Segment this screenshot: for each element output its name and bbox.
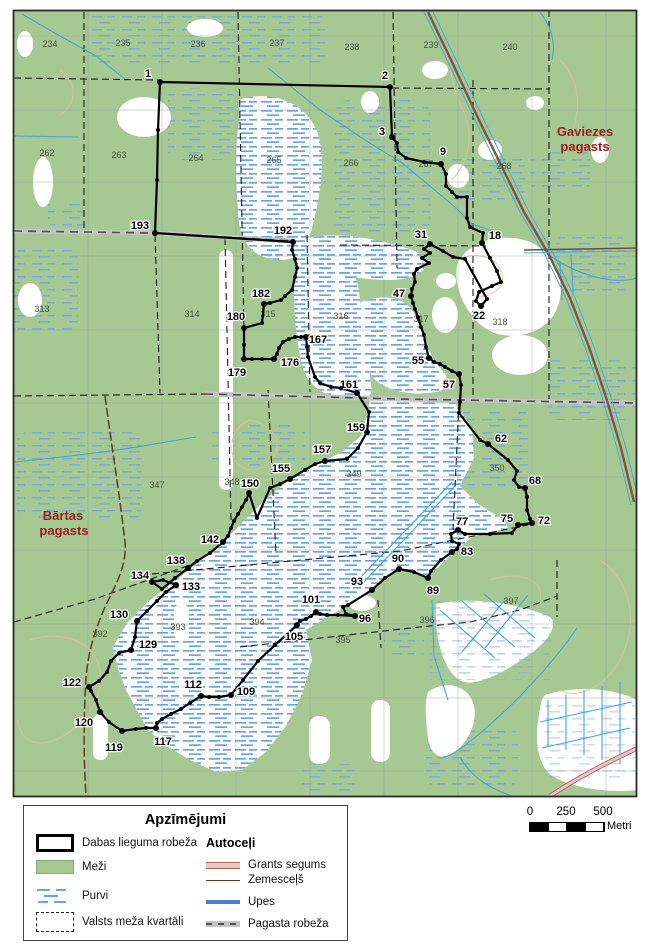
boundary-point: [281, 340, 285, 344]
boundary-point: [356, 446, 360, 450]
boundary-point-label: 167: [309, 334, 327, 346]
boundary-point: [287, 476, 293, 482]
boundary-point: [220, 539, 226, 545]
boundary-point: [94, 698, 98, 702]
reserve-boundary-label: Dabas lieguma robeža: [82, 837, 197, 849]
grid-quarter-number: 235: [115, 38, 130, 48]
grid-quarter-number: 347: [149, 480, 164, 490]
dirt-road-swatch: [206, 880, 240, 881]
boundary-point: [226, 534, 230, 538]
boundary-point: [128, 647, 134, 653]
boundary-point: [164, 590, 168, 594]
boundary-point: [525, 495, 529, 499]
boundary-point: [463, 532, 467, 536]
boundary-point: [344, 612, 348, 616]
boundary-point: [149, 579, 155, 585]
boundary-point: [161, 578, 165, 582]
boundary-point-label: 101: [302, 594, 320, 606]
boundary-point: [244, 498, 248, 502]
boundary-point: [268, 486, 272, 490]
boundary-point: [419, 325, 423, 329]
grid-quarter-number: 313: [34, 304, 49, 314]
boundary-point: [97, 709, 103, 715]
boundary-point: [298, 619, 302, 623]
boundary-point-label: 142: [201, 534, 219, 546]
boundary-point: [450, 369, 454, 373]
boundary-point: [529, 520, 535, 526]
boundary-point: [438, 362, 442, 366]
boundary-point: [465, 216, 469, 220]
legend-item-gravel-road: Grants segums: [206, 859, 326, 871]
boundary-point: [422, 247, 426, 251]
scale-tick-500: 500: [593, 806, 612, 818]
boundary-point: [451, 255, 455, 259]
boundary-point: [86, 684, 92, 690]
boundary-point: [389, 134, 395, 140]
boundary-point: [444, 184, 448, 188]
boundary-point: [303, 468, 307, 472]
grid-quarter-number: 266: [343, 158, 358, 168]
boundary-point: [449, 532, 453, 536]
boundary-point-label: 93: [351, 576, 363, 588]
boundary-point: [293, 257, 297, 261]
boundary-point: [329, 385, 333, 389]
boundary-point: [157, 79, 163, 85]
boundary-point-label: 192: [274, 225, 292, 237]
boundary-point-label: 68: [529, 475, 541, 487]
boundary-point: [468, 225, 472, 229]
boundary-point: [290, 248, 294, 252]
boundary-point: [396, 566, 402, 572]
boundary-point: [341, 605, 345, 609]
boundary-point: [229, 526, 233, 530]
gaviezes-pagasts-label-line2: pagasts: [560, 139, 609, 154]
boundary-point-label: 1: [145, 68, 151, 80]
boundary-point: [133, 635, 137, 639]
boundary-point: [242, 343, 246, 347]
boundary-point: [422, 333, 426, 337]
boundary-point-label: 133: [182, 581, 200, 593]
boundary-point: [277, 346, 281, 350]
boundary-point: [427, 241, 433, 247]
boundary-point: [525, 508, 529, 512]
boundary-point: [444, 172, 448, 176]
boundary-point: [412, 272, 416, 276]
boundary-point-label: 47: [393, 288, 405, 300]
boundary-point: [485, 297, 489, 301]
boundary-point-label: 55: [412, 355, 424, 367]
grid-quarter-number: 350: [489, 463, 504, 473]
boundary-point: [395, 141, 399, 145]
boundary-point: [450, 539, 454, 543]
boundary-point: [455, 547, 459, 551]
boundary-point-label: 31: [415, 229, 427, 241]
grid-quarter-number: 397: [503, 596, 518, 606]
boundary-point: [169, 712, 173, 716]
boundary-point: [517, 485, 521, 489]
boundary-point-label: 83: [461, 546, 473, 558]
bartas-pagasts-label-line1: Bārtas: [43, 508, 83, 523]
boundary-point: [457, 411, 461, 415]
boundary-point: [278, 482, 282, 486]
boundary-point: [313, 609, 319, 615]
boundary-point: [396, 150, 400, 154]
boundary-point: [241, 325, 247, 331]
boundary-point: [455, 195, 459, 199]
forest-quarters-swatch: [36, 912, 74, 932]
boundary-point: [515, 469, 519, 473]
boundary-point: [506, 458, 510, 462]
boundary-point: [438, 161, 444, 167]
boundary-point: [109, 659, 113, 663]
boundary-point: [256, 659, 260, 663]
boundary-point: [481, 231, 485, 235]
boundary-point: [304, 617, 308, 621]
boundary-point: [105, 670, 109, 674]
forest-swatch: [36, 860, 74, 874]
boundary-point: [510, 531, 514, 535]
boundary-point: [336, 613, 340, 617]
dirt-road-label: Zemesceļš: [248, 874, 304, 886]
boundary-point-label: 2: [382, 70, 388, 82]
boundary-point: [488, 532, 492, 536]
boundary-point-label: 3: [379, 126, 385, 138]
boundary-point: [387, 84, 393, 90]
boundary-point: [408, 293, 414, 299]
boundary-point-label: 22: [473, 310, 485, 322]
boundary-point: [515, 522, 521, 528]
legend-item-forest-quarters: Valsts meža kvartāli: [36, 912, 183, 932]
grid-quarter-number: 394: [249, 617, 264, 627]
boundary-point: [383, 576, 387, 580]
legend-box: Apzīmējumi Dabas lieguma robeža Meži Pur…: [23, 805, 348, 941]
boundary-point-label: 193: [131, 220, 149, 232]
boundary-point: [499, 280, 503, 284]
boundary-point: [208, 551, 212, 555]
boundary-point: [426, 355, 432, 361]
grid-quarter-number: 316: [333, 311, 348, 321]
boundary-point: [478, 303, 484, 309]
boundary-point-label: 159: [347, 422, 365, 434]
boundary-point: [450, 190, 454, 194]
boundary-point: [458, 400, 462, 404]
boundary-point: [195, 559, 199, 563]
boundary-point: [160, 717, 164, 721]
gaviezes-pagasts-label-line1: Gaviezes: [557, 124, 613, 139]
grid-quarter-number: 264: [188, 153, 203, 163]
boundary-point: [463, 257, 467, 261]
boundary-point: [339, 386, 343, 390]
boundary-point: [495, 269, 499, 273]
boundary-point: [427, 261, 431, 265]
map-page: 2342352362372382392402622632642652662672…: [0, 0, 650, 952]
grid-quarter-number: 349: [346, 469, 361, 479]
boundary-point: [325, 613, 329, 617]
rivers-swatch: [206, 900, 240, 904]
boundary-point: [134, 618, 140, 624]
boundary-point: [179, 707, 183, 711]
boundary-point: [322, 458, 328, 464]
scale-bar-segments: [529, 822, 605, 832]
boundary-point: [474, 299, 478, 303]
scale-bar: 0 250 500 Metri: [516, 806, 648, 846]
boundary-point: [295, 266, 299, 270]
grid-quarter-number: 348: [224, 477, 239, 487]
boundary-point: [155, 721, 159, 725]
boundary-point: [155, 599, 159, 603]
forest-quarters-label: Valsts meža kvartāli: [82, 916, 183, 928]
boundary-point: [306, 355, 310, 359]
scale-tick-0: 0: [527, 806, 533, 818]
boundary-point: [318, 381, 322, 385]
boundary-point: [188, 701, 192, 705]
boundary-point: [294, 622, 300, 628]
boundary-point: [439, 558, 443, 562]
grid-quarter-number: 237: [269, 38, 284, 48]
boundary-point: [411, 301, 415, 305]
boundary-point: [241, 678, 245, 682]
boundary-point: [279, 298, 283, 302]
boundary-point: [255, 516, 259, 520]
boundary-point: [152, 230, 158, 236]
boundary-point: [283, 294, 287, 298]
boundary-point: [459, 383, 463, 387]
legend-title: Apzīmējumi: [24, 812, 347, 828]
grid-quarter-number: 263: [111, 150, 126, 160]
boundary-point: [246, 490, 252, 496]
boundary-point-label: 62: [495, 433, 507, 445]
boundary-point: [425, 575, 431, 581]
boundary-point: [420, 256, 424, 260]
boundary-point-label: 117: [154, 736, 172, 748]
boundary-point-label: 90: [392, 553, 404, 565]
boundary-point: [413, 307, 417, 311]
boundary-point: [198, 693, 204, 699]
boundary-point-label: 179: [228, 367, 246, 379]
boundary-point: [352, 613, 358, 619]
boundary-point: [449, 549, 455, 555]
boundary-point: [271, 356, 277, 362]
boundary-point: [488, 256, 492, 260]
grid-quarter-number: 392: [92, 629, 107, 639]
boundary-point: [413, 280, 417, 284]
boundary-point: [416, 315, 420, 319]
boundary-point-label: 176: [281, 357, 299, 369]
boundary-point: [119, 728, 125, 734]
boundary-point: [173, 576, 177, 580]
boundary-point: [155, 178, 159, 182]
boundary-point: [428, 251, 432, 255]
boundary-point: [217, 695, 221, 699]
boundary-point: [443, 365, 447, 369]
boundary-point: [236, 512, 240, 516]
boundary-point-label: 130: [110, 609, 128, 621]
roads-header: Autoceļi: [206, 836, 255, 850]
boundary-point: [173, 582, 179, 588]
legend-item-forest: Meži: [36, 860, 106, 874]
boundary-point-label: 155: [272, 463, 290, 475]
boundary-point: [477, 290, 481, 294]
boundary-point: [232, 519, 236, 523]
parish-boundary-label: Pagasta robeža: [248, 918, 329, 930]
boundary-point: [290, 288, 294, 292]
boundary-point: [260, 321, 264, 325]
boundary-point: [345, 457, 349, 461]
boundary-point-label: 157: [313, 444, 331, 456]
scale-unit: Metri: [607, 820, 631, 832]
boundary-point-label: 18: [489, 230, 501, 242]
boundary-point: [107, 720, 111, 724]
legend-item-bogs: Purvi: [36, 886, 108, 906]
grid-quarter-number: 317: [413, 314, 428, 324]
boundary-point: [424, 345, 428, 349]
boundary-point: [478, 438, 482, 442]
bartas-pagasts-label-line2: pagasts: [39, 523, 88, 538]
forest-label: Meži: [82, 861, 106, 873]
grid-quarter-number: 234: [42, 39, 57, 49]
boundary-point-label: 120: [75, 717, 93, 729]
legend-item-dirt-road: Zemesceļš: [206, 874, 304, 886]
boundary-point: [313, 375, 317, 379]
boundary-point: [134, 727, 138, 731]
grid-quarter-number: 239: [423, 40, 438, 50]
grid-quarter-number: 265: [266, 155, 281, 165]
boundary-point-label: 72: [538, 515, 550, 527]
grid-quarter-number: 396: [419, 615, 434, 625]
boundary-point: [479, 240, 485, 246]
grid-quarter-number: 393: [170, 622, 185, 632]
boundary-point: [97, 679, 101, 683]
boundary-point: [410, 287, 414, 291]
legend-item-rivers: Upes: [206, 896, 275, 908]
boundary-point: [117, 651, 121, 655]
boundary-point-label: 9: [440, 146, 446, 158]
boundary-point-label: 138: [167, 555, 185, 567]
boundary-point: [228, 692, 234, 698]
boundary-point: [261, 301, 267, 307]
grid-quarter-number: 314: [184, 309, 199, 319]
boundary-point: [309, 614, 313, 618]
boundary-point: [313, 462, 317, 466]
boundary-point: [156, 128, 160, 132]
boundary-point-label: 89: [427, 585, 439, 597]
boundary-point-label: 150: [241, 478, 259, 490]
boundary-point: [522, 485, 528, 491]
boundary-point: [273, 643, 277, 647]
legend-item-parish-boundary: Pagasta robeža: [206, 918, 329, 930]
gravel-road-swatch: [206, 862, 240, 869]
boundary-point: [293, 275, 297, 279]
boundary-point-label: 122: [63, 677, 81, 689]
grid-quarter-number: 240: [502, 42, 517, 52]
gravel-road-label: Grants segums: [248, 859, 326, 871]
boundary-point-label: 129: [139, 639, 157, 651]
boundary-point: [160, 587, 164, 591]
boundary-point: [456, 371, 462, 377]
boundary-point: [268, 301, 272, 305]
boundary-point: [185, 565, 191, 571]
boundary-point: [412, 570, 416, 574]
boundary-point: [250, 357, 254, 361]
boundary-point: [485, 441, 491, 447]
boundary-point: [275, 352, 279, 356]
boundary-point-label: 109: [237, 686, 255, 698]
grid-quarter-number: 262: [39, 148, 54, 158]
grid-quarter-number: 238: [344, 42, 359, 52]
boundary-point: [369, 587, 375, 593]
grid-quarter-number: 395: [335, 635, 350, 645]
boundary-point: [290, 239, 296, 245]
scale-tick-250: 250: [556, 806, 575, 818]
boundary-point-label: 75: [501, 513, 513, 525]
boundary-point: [429, 569, 433, 573]
boundary-point: [299, 335, 303, 339]
boundary-point: [441, 249, 445, 253]
boundary-point: [287, 337, 291, 341]
boundary-point: [260, 357, 264, 361]
boundary-point: [240, 505, 244, 509]
boundary-point: [422, 160, 426, 164]
boundary-point: [415, 267, 419, 271]
boundary-point: [293, 335, 297, 339]
reserve-boundary-swatch: [36, 834, 74, 852]
bog-swatch: [36, 886, 74, 906]
boundary-point: [404, 156, 408, 160]
boundary-point: [144, 726, 148, 730]
grid-quarter-number: 268: [496, 161, 511, 171]
boundary-point: [241, 356, 247, 362]
boundary-point-label: 119: [105, 742, 123, 754]
legend-item-reserve-boundary: Dabas lieguma robeža: [36, 834, 197, 852]
boundary-point: [465, 195, 469, 199]
boundary-point-label: 105: [285, 631, 303, 643]
parish-boundary-swatch: [206, 921, 240, 927]
boundary-point: [207, 695, 211, 699]
boundary-point-label: 57: [443, 379, 455, 391]
grid-quarter-number: 236: [190, 39, 205, 49]
boundary-point-label: 180: [227, 311, 245, 323]
boundary-point: [367, 410, 371, 414]
boundary-point-label: 134: [131, 570, 150, 582]
boundary-point-label: 77: [456, 516, 468, 528]
boundary-point-label: 96: [359, 613, 371, 625]
boundary-point: [346, 603, 350, 607]
boundary-point: [153, 725, 159, 731]
boundary-point: [490, 284, 494, 288]
boundary-point: [432, 360, 436, 364]
bog-label: Purvi: [82, 890, 108, 902]
boundary-point: [512, 478, 516, 482]
boundary-point-label: 112: [184, 679, 202, 691]
boundary-point-label: 182: [252, 288, 270, 300]
boundary-point: [145, 609, 149, 613]
grid-quarter-number: 318: [492, 317, 507, 327]
rivers-label: Upes: [248, 896, 275, 908]
